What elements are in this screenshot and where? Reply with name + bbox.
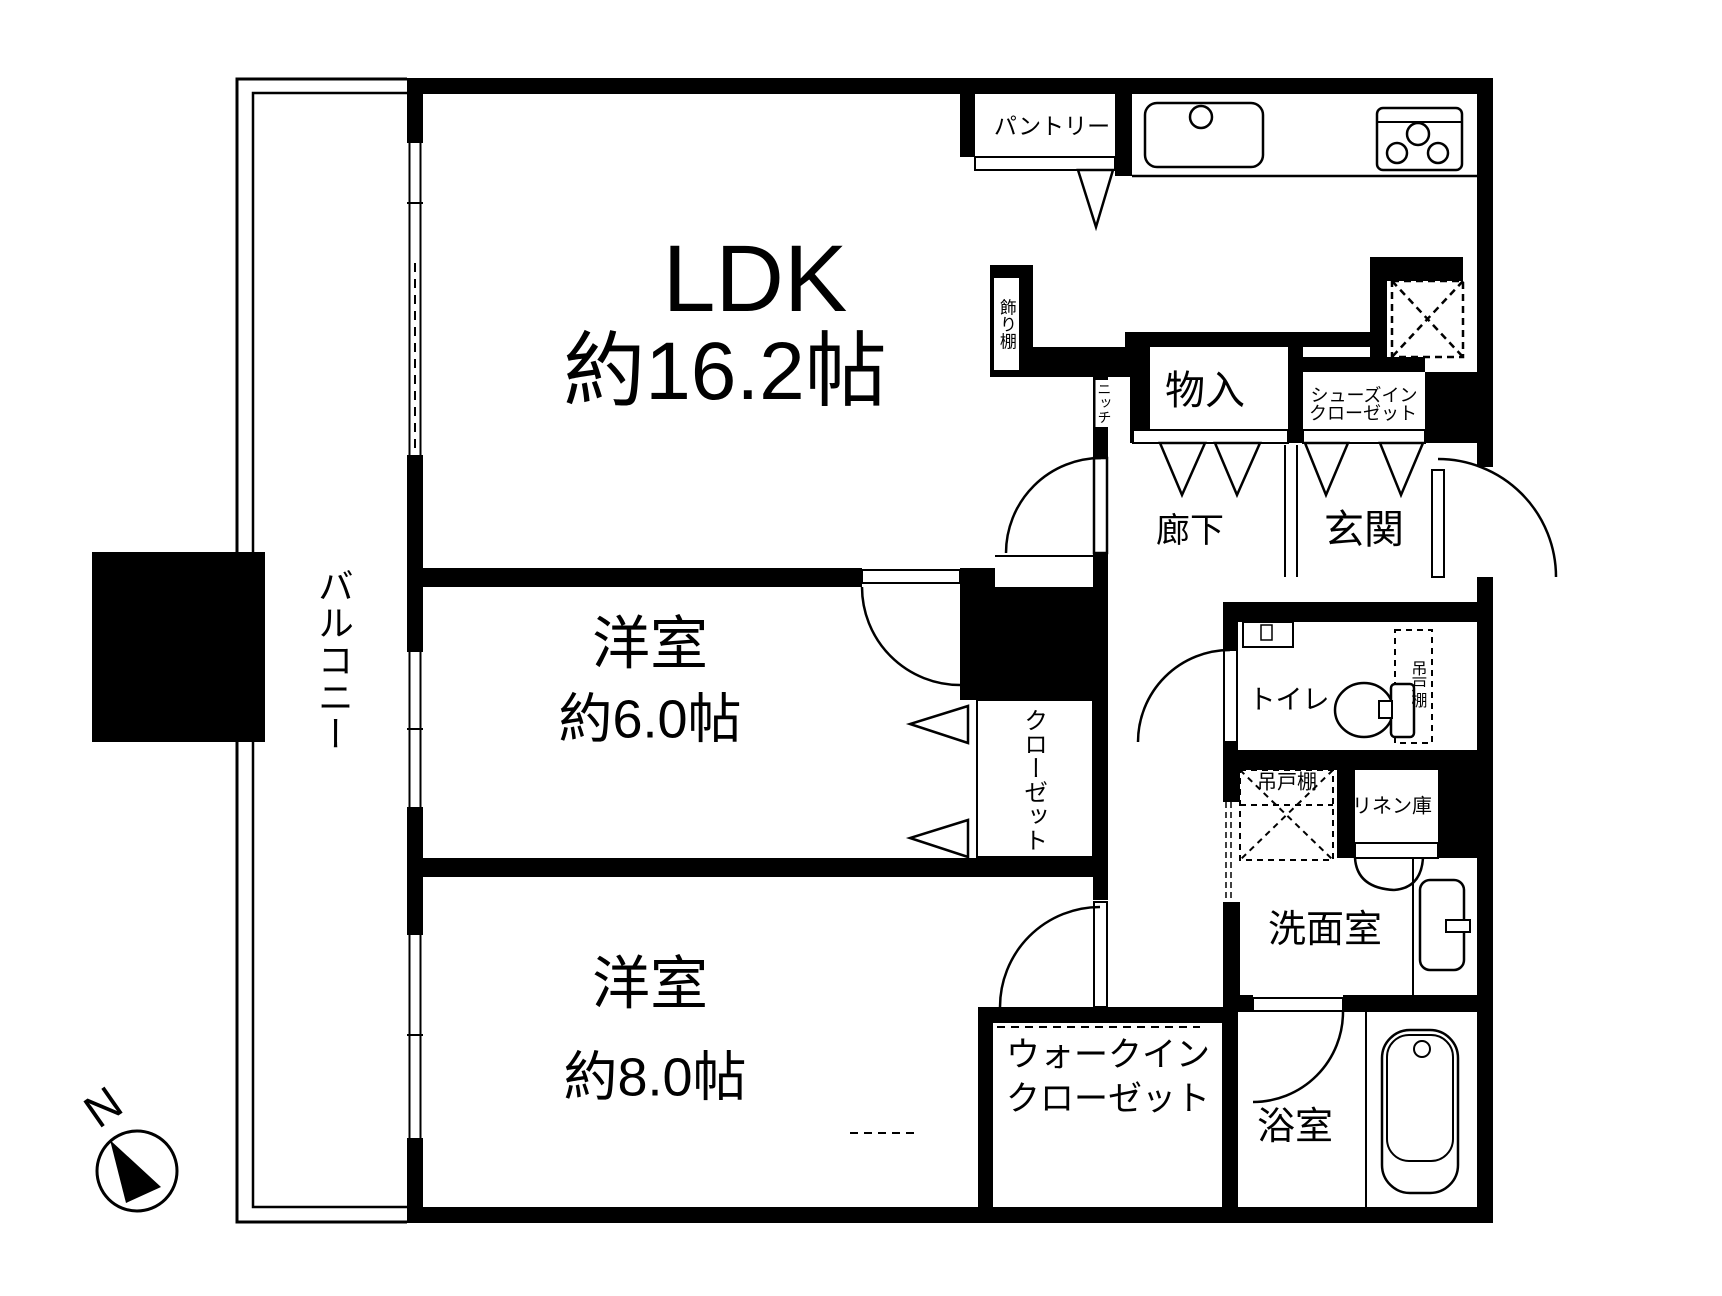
label-hanging-cupboard-wash: 吊戸棚: [1257, 773, 1317, 794]
bath-door: [1253, 998, 1343, 1102]
room-label-west8: 洋室: [592, 955, 708, 1016]
monoire-shelf: [1133, 430, 1288, 443]
pipe-space-box: [1392, 281, 1463, 357]
stove: [1377, 108, 1462, 170]
label-niche: ニッチ: [1097, 382, 1112, 424]
room-label-west6: 洋室: [592, 615, 708, 676]
washbasin: [1413, 858, 1470, 995]
label-bath: 浴室: [1257, 1108, 1333, 1148]
label-linen: リネン庫: [1352, 797, 1432, 818]
label-pantry: パントリー: [994, 114, 1110, 138]
closet-folding-doors: [910, 700, 1093, 857]
kitchen-counter: [1132, 103, 1477, 176]
washroom-sliding-door: [1226, 802, 1231, 902]
label-sic-line2: クローゼット: [1309, 405, 1417, 424]
room-size-west8: 約8.0帖: [563, 1050, 746, 1107]
label-washroom: 洗面室: [1268, 911, 1382, 951]
room-label-ldk: LDK: [663, 230, 848, 330]
toilet-door: [1138, 650, 1237, 742]
west8-door: [1000, 902, 1107, 1007]
label-hallway: 廊下: [1156, 514, 1224, 550]
label-entrance: 玄関: [1324, 509, 1404, 551]
label-hanging-cupboard-toilet: 吊戸棚: [1408, 660, 1425, 708]
label-kazaridana: 飾り棚: [997, 299, 1015, 350]
room-size-ldk: 約16.2帖: [563, 329, 887, 415]
entrance-door: [1432, 459, 1556, 577]
ldk-door: [995, 458, 1107, 556]
linen-shelf: [1355, 843, 1438, 858]
label-wic-line2: クローゼット: [1006, 1082, 1210, 1118]
compass-north-icon: [97, 1131, 177, 1211]
label-closet: クローゼット: [1020, 708, 1045, 852]
toilet-fixture: [1243, 622, 1414, 737]
west6-door: [862, 570, 960, 685]
label-monoire: 物入: [1165, 370, 1245, 412]
bathtub: [1366, 1012, 1458, 1207]
label-wic-line1: ウォークイン: [1006, 1038, 1210, 1074]
room-size-west6: 約6.0帖: [558, 692, 741, 749]
floor-plan-drawing: [0, 0, 1722, 1296]
floor-plan: LDK 約16.2帖 パントリー 飾り棚 ニッチ 物入 シューズイン クローゼッ…: [0, 0, 1722, 1296]
genkan-step-lines: [1285, 445, 1297, 577]
pantry-shelf: [975, 157, 1115, 170]
label-toilet: トイレ: [1249, 686, 1330, 714]
sic-shelf: [1303, 430, 1425, 443]
faucet-icon: [1190, 106, 1212, 128]
label-balcony: バルコニー: [314, 568, 352, 753]
